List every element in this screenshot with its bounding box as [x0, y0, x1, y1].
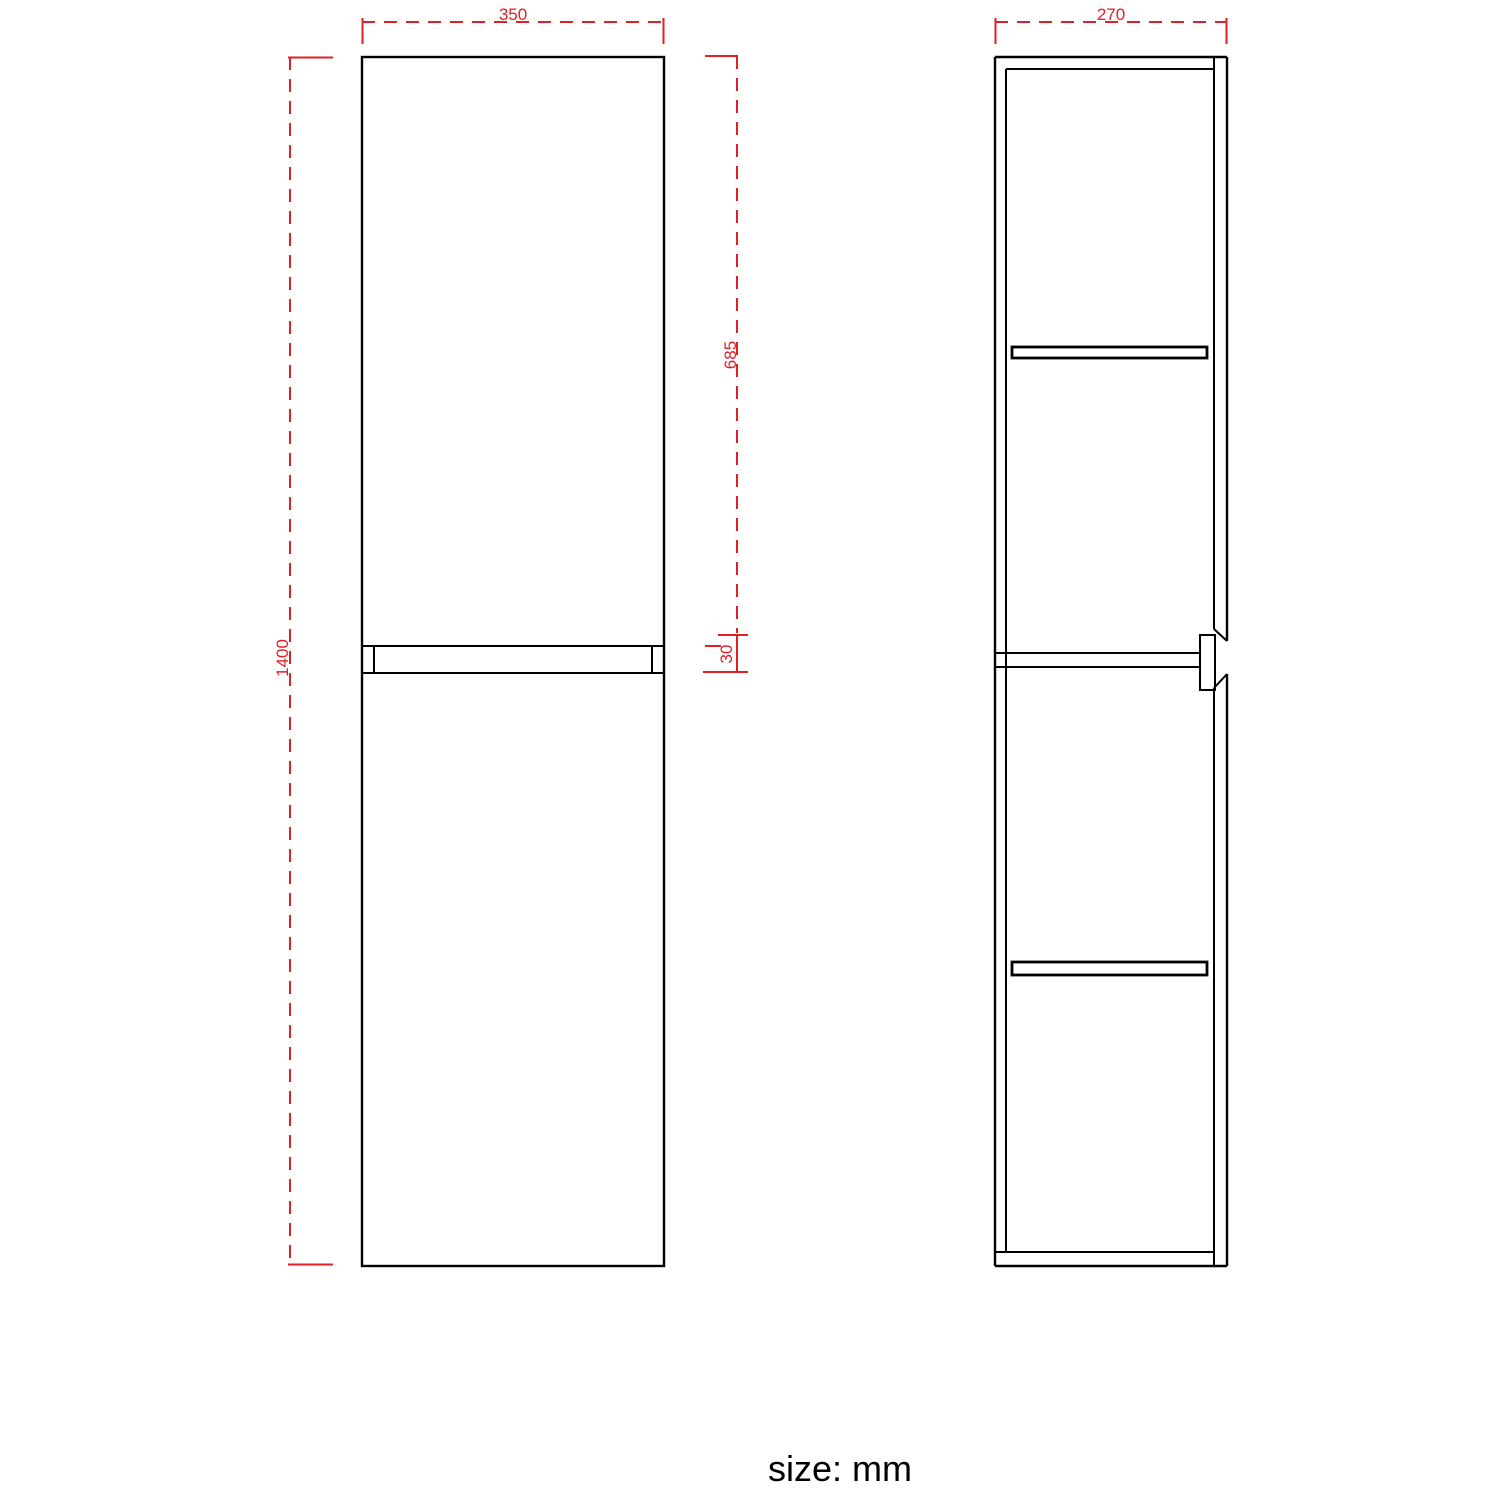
technical-drawing-canvas: 350 1400 685 30 [0, 0, 1500, 1500]
side-handle-block [1200, 635, 1215, 690]
units-note: size: mm [768, 1448, 912, 1489]
dim-front-height-label: 1400 [273, 639, 292, 677]
cabinet-dimension-drawing: 350 1400 685 30 [0, 0, 1500, 1500]
dim-side-depth-label: 270 [1097, 5, 1125, 24]
front-cabinet-outline [362, 57, 664, 1266]
dim-gap-label: 30 [717, 645, 736, 664]
dim-front-width: 350 [362, 5, 664, 44]
side-shelf-lower [1012, 962, 1207, 975]
dim-side-depth: 270 [995, 5, 1227, 44]
dim-upper-section: 685 [705, 56, 740, 646]
dim-gap: 30 [703, 635, 748, 672]
dim-front-width-label: 350 [499, 5, 527, 24]
side-view [995, 57, 1227, 1266]
dim-front-height: 1400 [273, 57, 333, 1266]
side-shelf-upper [1012, 347, 1207, 358]
dim-upper-section-label: 685 [721, 341, 740, 369]
front-view [362, 57, 664, 1266]
dimensions: 350 1400 685 30 [273, 5, 1227, 1266]
